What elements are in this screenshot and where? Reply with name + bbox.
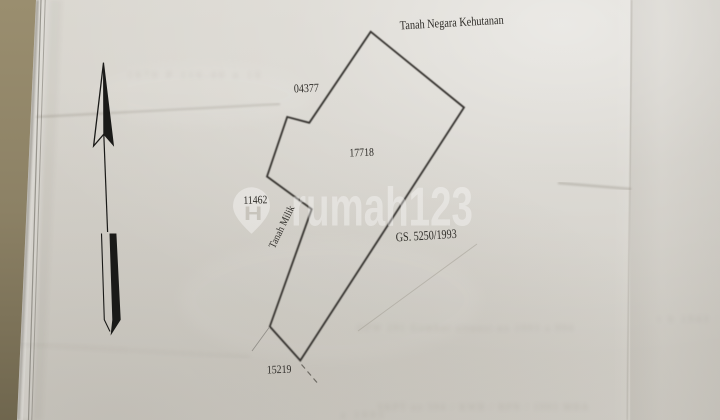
svg-text:15219: 15219 bbox=[267, 364, 292, 377]
svg-text:04377: 04377 bbox=[294, 81, 319, 96]
svg-text:11462: 11462 bbox=[243, 194, 268, 207]
svg-text:17718: 17718 bbox=[349, 147, 374, 160]
